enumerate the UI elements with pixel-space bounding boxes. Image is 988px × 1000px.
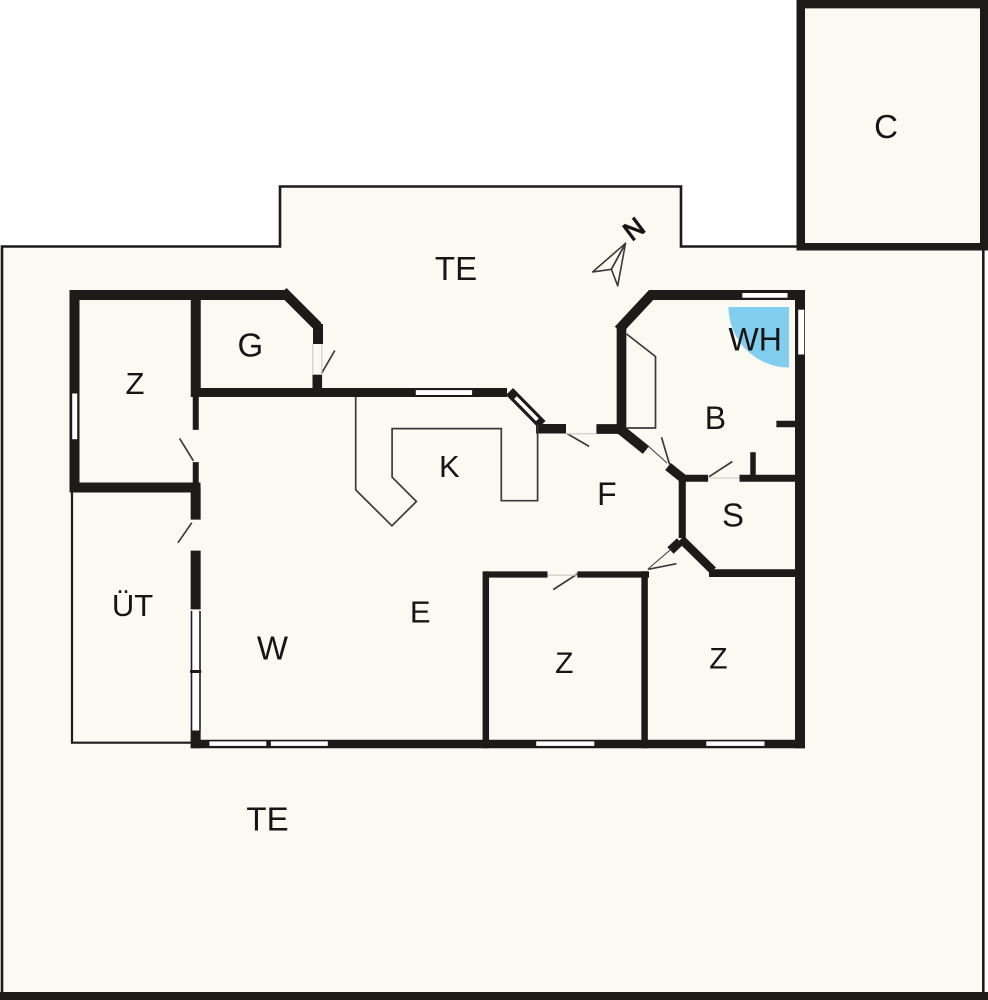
svg-text:S: S bbox=[722, 496, 744, 533]
svg-text:G: G bbox=[237, 326, 263, 363]
svg-text:TE: TE bbox=[246, 801, 288, 838]
svg-text:WH: WH bbox=[729, 321, 782, 357]
svg-text:E: E bbox=[410, 594, 431, 629]
svg-text:W: W bbox=[257, 630, 289, 667]
svg-text:ÜT: ÜT bbox=[112, 588, 153, 623]
svg-text:B: B bbox=[705, 400, 726, 436]
svg-text:Z: Z bbox=[709, 643, 727, 676]
svg-text:F: F bbox=[597, 476, 617, 512]
svg-text:C: C bbox=[874, 108, 898, 145]
svg-text:Z: Z bbox=[555, 647, 573, 680]
svg-text:TE: TE bbox=[435, 250, 477, 287]
svg-text:K: K bbox=[439, 449, 460, 484]
svg-text:Z: Z bbox=[126, 366, 145, 401]
